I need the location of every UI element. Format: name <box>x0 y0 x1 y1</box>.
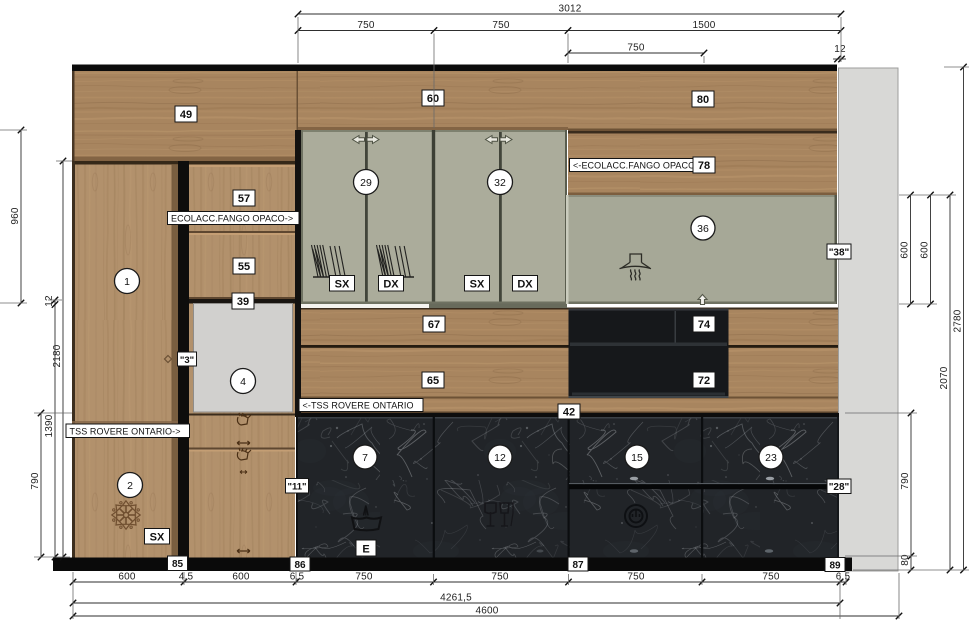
svg-text:"28": "28" <box>829 482 850 493</box>
svg-text:42: 42 <box>563 407 575 419</box>
svg-text:2780: 2780 <box>953 309 964 332</box>
svg-text:67: 67 <box>428 319 440 331</box>
svg-text:750: 750 <box>355 572 373 583</box>
svg-text:"38": "38" <box>829 248 850 259</box>
svg-text:2: 2 <box>127 480 133 492</box>
svg-text:32: 32 <box>494 177 506 189</box>
svg-text:DX: DX <box>517 279 533 291</box>
svg-text:29: 29 <box>360 177 372 189</box>
svg-text:SX: SX <box>470 279 485 291</box>
svg-text:7: 7 <box>362 452 368 464</box>
svg-text:600: 600 <box>900 241 911 259</box>
svg-text:12: 12 <box>494 452 506 464</box>
svg-text:600: 600 <box>232 572 250 583</box>
svg-text:2070: 2070 <box>939 366 950 389</box>
svg-text:600: 600 <box>920 241 931 259</box>
svg-text:1500: 1500 <box>692 20 715 31</box>
svg-text:49: 49 <box>180 109 192 121</box>
svg-text:SX: SX <box>150 532 165 544</box>
svg-text:39: 39 <box>237 296 249 308</box>
svg-text:80: 80 <box>697 94 709 106</box>
svg-text:E: E <box>362 544 369 556</box>
svg-text:750: 750 <box>627 43 645 54</box>
svg-text:"3": "3" <box>180 355 194 366</box>
svg-text:85: 85 <box>172 559 184 570</box>
svg-text:89: 89 <box>829 561 841 572</box>
svg-text:4600: 4600 <box>475 606 498 617</box>
svg-text:790: 790 <box>900 472 911 490</box>
svg-text:6,5: 6,5 <box>836 572 851 583</box>
svg-text:SX: SX <box>335 279 350 291</box>
svg-text:600: 600 <box>118 572 136 583</box>
svg-text:3012: 3012 <box>558 4 581 15</box>
svg-text:72: 72 <box>698 375 710 387</box>
svg-text:57: 57 <box>238 193 250 205</box>
svg-text:750: 750 <box>357 20 375 31</box>
svg-text:15: 15 <box>631 452 643 464</box>
svg-text:TSS ROVERE ONTARIO->: TSS ROVERE ONTARIO-> <box>70 427 181 437</box>
svg-text:750: 750 <box>762 572 780 583</box>
svg-text:960: 960 <box>10 207 21 225</box>
svg-text:1390: 1390 <box>44 414 55 437</box>
svg-text:<-ECOLACC.FANGO OPACO: <-ECOLACC.FANGO OPACO <box>573 161 695 171</box>
svg-text:87: 87 <box>572 560 584 571</box>
svg-text:60: 60 <box>427 93 439 105</box>
svg-text:4,5: 4,5 <box>179 572 194 583</box>
svg-text:12: 12 <box>44 295 55 307</box>
svg-text:65: 65 <box>427 375 439 387</box>
svg-text:750: 750 <box>627 572 645 583</box>
svg-text:4: 4 <box>240 376 246 388</box>
svg-text:23: 23 <box>765 452 777 464</box>
svg-text:2180: 2180 <box>52 344 63 367</box>
svg-text:4261,5: 4261,5 <box>440 593 472 604</box>
svg-text:6,5: 6,5 <box>290 572 305 583</box>
svg-text:78: 78 <box>698 160 710 172</box>
svg-text:DX: DX <box>383 279 399 291</box>
svg-text:750: 750 <box>492 20 510 31</box>
svg-text:12: 12 <box>834 44 846 55</box>
svg-text:86: 86 <box>294 560 306 571</box>
svg-text:55: 55 <box>238 261 250 273</box>
svg-text:"11": "11" <box>287 482 306 493</box>
svg-text:1: 1 <box>124 276 130 288</box>
svg-text:36: 36 <box>697 223 709 235</box>
svg-text:750: 750 <box>491 572 509 583</box>
svg-text:790: 790 <box>30 472 41 490</box>
svg-text:ECOLACC.FANGO OPACO->: ECOLACC.FANGO OPACO-> <box>171 214 293 224</box>
svg-text:<-TSS ROVERE ONTARIO: <-TSS ROVERE ONTARIO <box>303 401 414 411</box>
svg-text:74: 74 <box>698 319 711 331</box>
